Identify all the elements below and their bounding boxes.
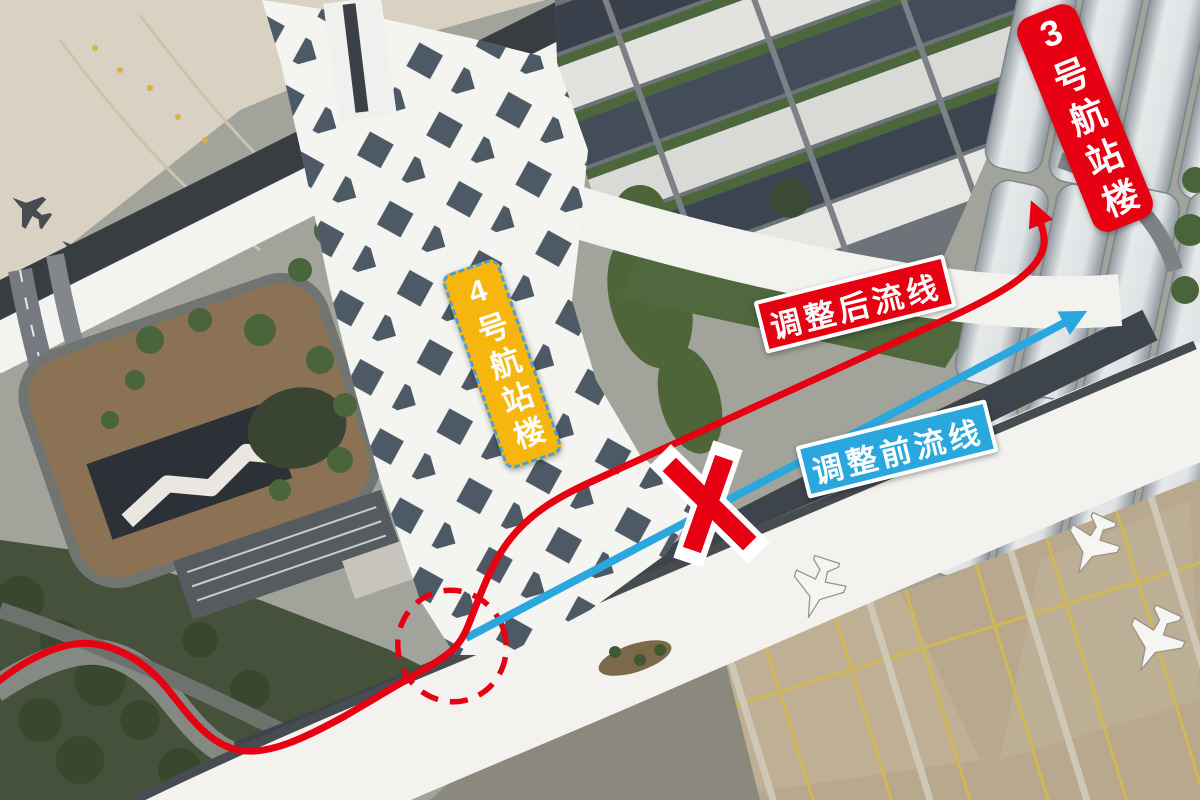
- right-edge-trees: [1171, 167, 1200, 304]
- annotated-airport-map: 4号航站楼 3号航站楼 调整后流线 调整前流线: [0, 0, 1200, 800]
- satellite-map: [0, 0, 1200, 800]
